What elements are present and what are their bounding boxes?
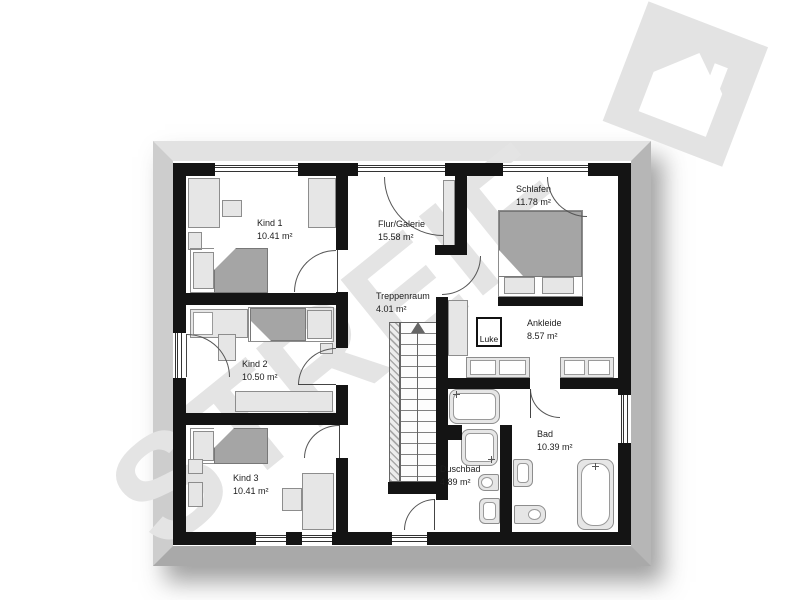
chair bbox=[222, 200, 242, 217]
sink-basin bbox=[483, 502, 496, 520]
wall-exterior-right bbox=[618, 163, 631, 545]
luke-label: Luke bbox=[478, 334, 500, 344]
room-name: Kind 2 bbox=[242, 358, 278, 371]
wardrobe bbox=[308, 178, 336, 228]
room-name: Treppenraum bbox=[376, 290, 430, 303]
cabinet bbox=[188, 482, 203, 507]
wall-ankleide-bad-right bbox=[560, 378, 618, 389]
room-name: Bad bbox=[537, 428, 573, 441]
faucet-icon bbox=[453, 391, 460, 398]
window-icon bbox=[358, 165, 445, 172]
sideboard bbox=[235, 391, 333, 412]
closet bbox=[443, 180, 455, 250]
wall-segment bbox=[336, 385, 348, 425]
door-leaf bbox=[337, 250, 338, 292]
wall-stub bbox=[448, 425, 462, 440]
stair-railing bbox=[389, 322, 400, 482]
wall-stair-bottom bbox=[388, 482, 437, 494]
window-icon bbox=[256, 535, 286, 542]
wall-segment bbox=[336, 292, 348, 348]
room-label-kind3: Kind 3 10.41 m² bbox=[233, 472, 269, 498]
faucet-icon bbox=[592, 463, 599, 470]
bed-pillow bbox=[542, 277, 574, 294]
room-label-bad: Bad 10.39 m² bbox=[537, 428, 573, 454]
room-area: 10.39 m² bbox=[537, 441, 573, 454]
window-icon bbox=[621, 395, 628, 443]
cabinet bbox=[188, 459, 203, 474]
wall-ankleide-bad-left bbox=[448, 378, 530, 389]
room-area: 10.41 m² bbox=[257, 230, 293, 243]
room-label-ankleide: Ankleide 8.57 m² bbox=[527, 317, 562, 343]
room-area: 10.41 m² bbox=[233, 485, 269, 498]
room-label-flur: Flur/Galerie 15.58 m² bbox=[378, 218, 425, 244]
drain-icon bbox=[488, 456, 495, 463]
wall-segment bbox=[336, 458, 348, 532]
room-name: Schlafen bbox=[516, 183, 551, 196]
window-icon bbox=[392, 535, 427, 542]
room-label-treppenraum: Treppenraum 4.01 m² bbox=[376, 290, 430, 316]
closet-panel bbox=[499, 360, 526, 375]
room-label-kind2: Kind 2 10.50 m² bbox=[242, 358, 278, 384]
room-area: 15.58 m² bbox=[378, 231, 425, 244]
attic-hatch-luke: Luke bbox=[476, 317, 502, 347]
door-leaf bbox=[298, 384, 336, 385]
window-icon bbox=[175, 333, 182, 378]
closet-panel bbox=[564, 360, 585, 375]
bed-pillow bbox=[193, 312, 213, 335]
room-label-schlafen: Schlafen 11.78 m² bbox=[516, 183, 551, 209]
door-leaf bbox=[530, 389, 531, 418]
streif-house-logo-icon bbox=[585, 0, 785, 180]
window-icon bbox=[302, 535, 332, 542]
room-name: Kind 3 bbox=[233, 472, 269, 485]
room-area: 10.50 m² bbox=[242, 371, 278, 384]
closet bbox=[448, 300, 468, 356]
wall-kind2-kind3 bbox=[186, 413, 336, 425]
toilet-bowl bbox=[528, 509, 541, 520]
wall-flur-schlafen bbox=[455, 176, 467, 250]
desk bbox=[188, 178, 220, 228]
bed-pillow bbox=[193, 252, 214, 289]
room-name: Flur/Galerie bbox=[378, 218, 425, 231]
room-label-duschbad: Duschbad 4.89 m² bbox=[440, 463, 481, 489]
bed-pillow bbox=[504, 277, 535, 294]
wall-kind1-kind2 bbox=[186, 293, 336, 305]
room-label-kind1: Kind 1 10.41 m² bbox=[257, 217, 293, 243]
wall-duschbad-bad bbox=[500, 425, 512, 532]
room-name: Kind 1 bbox=[257, 217, 293, 230]
wardrobe bbox=[302, 473, 334, 530]
stair-walkline bbox=[417, 333, 418, 481]
window-icon bbox=[503, 165, 588, 172]
bed-pillow bbox=[193, 431, 214, 461]
desk bbox=[282, 488, 302, 511]
door-leaf bbox=[186, 334, 187, 377]
room-name: Duschbad bbox=[440, 463, 481, 476]
wall-schlafen-ankleide bbox=[498, 297, 583, 306]
door-leaf bbox=[339, 425, 340, 458]
stairs bbox=[400, 322, 437, 482]
room-area: 11.78 m² bbox=[516, 196, 551, 209]
room-area: 8.57 m² bbox=[527, 330, 562, 343]
window-icon bbox=[215, 165, 298, 172]
closet-panel bbox=[588, 360, 610, 375]
floorplan-page: STREIF bbox=[0, 0, 800, 600]
bathtub-inner bbox=[581, 463, 610, 526]
toilet-bowl bbox=[481, 477, 493, 488]
room-area: 4.89 m² bbox=[440, 476, 481, 489]
room-name: Ankleide bbox=[527, 317, 562, 330]
door-leaf bbox=[434, 499, 435, 530]
sink-basin bbox=[517, 463, 529, 483]
bed-pillow bbox=[307, 310, 332, 339]
wall-jog bbox=[435, 245, 467, 255]
room-area: 4.01 m² bbox=[376, 303, 430, 316]
closet-panel bbox=[470, 360, 496, 375]
wall-segment bbox=[336, 176, 348, 250]
